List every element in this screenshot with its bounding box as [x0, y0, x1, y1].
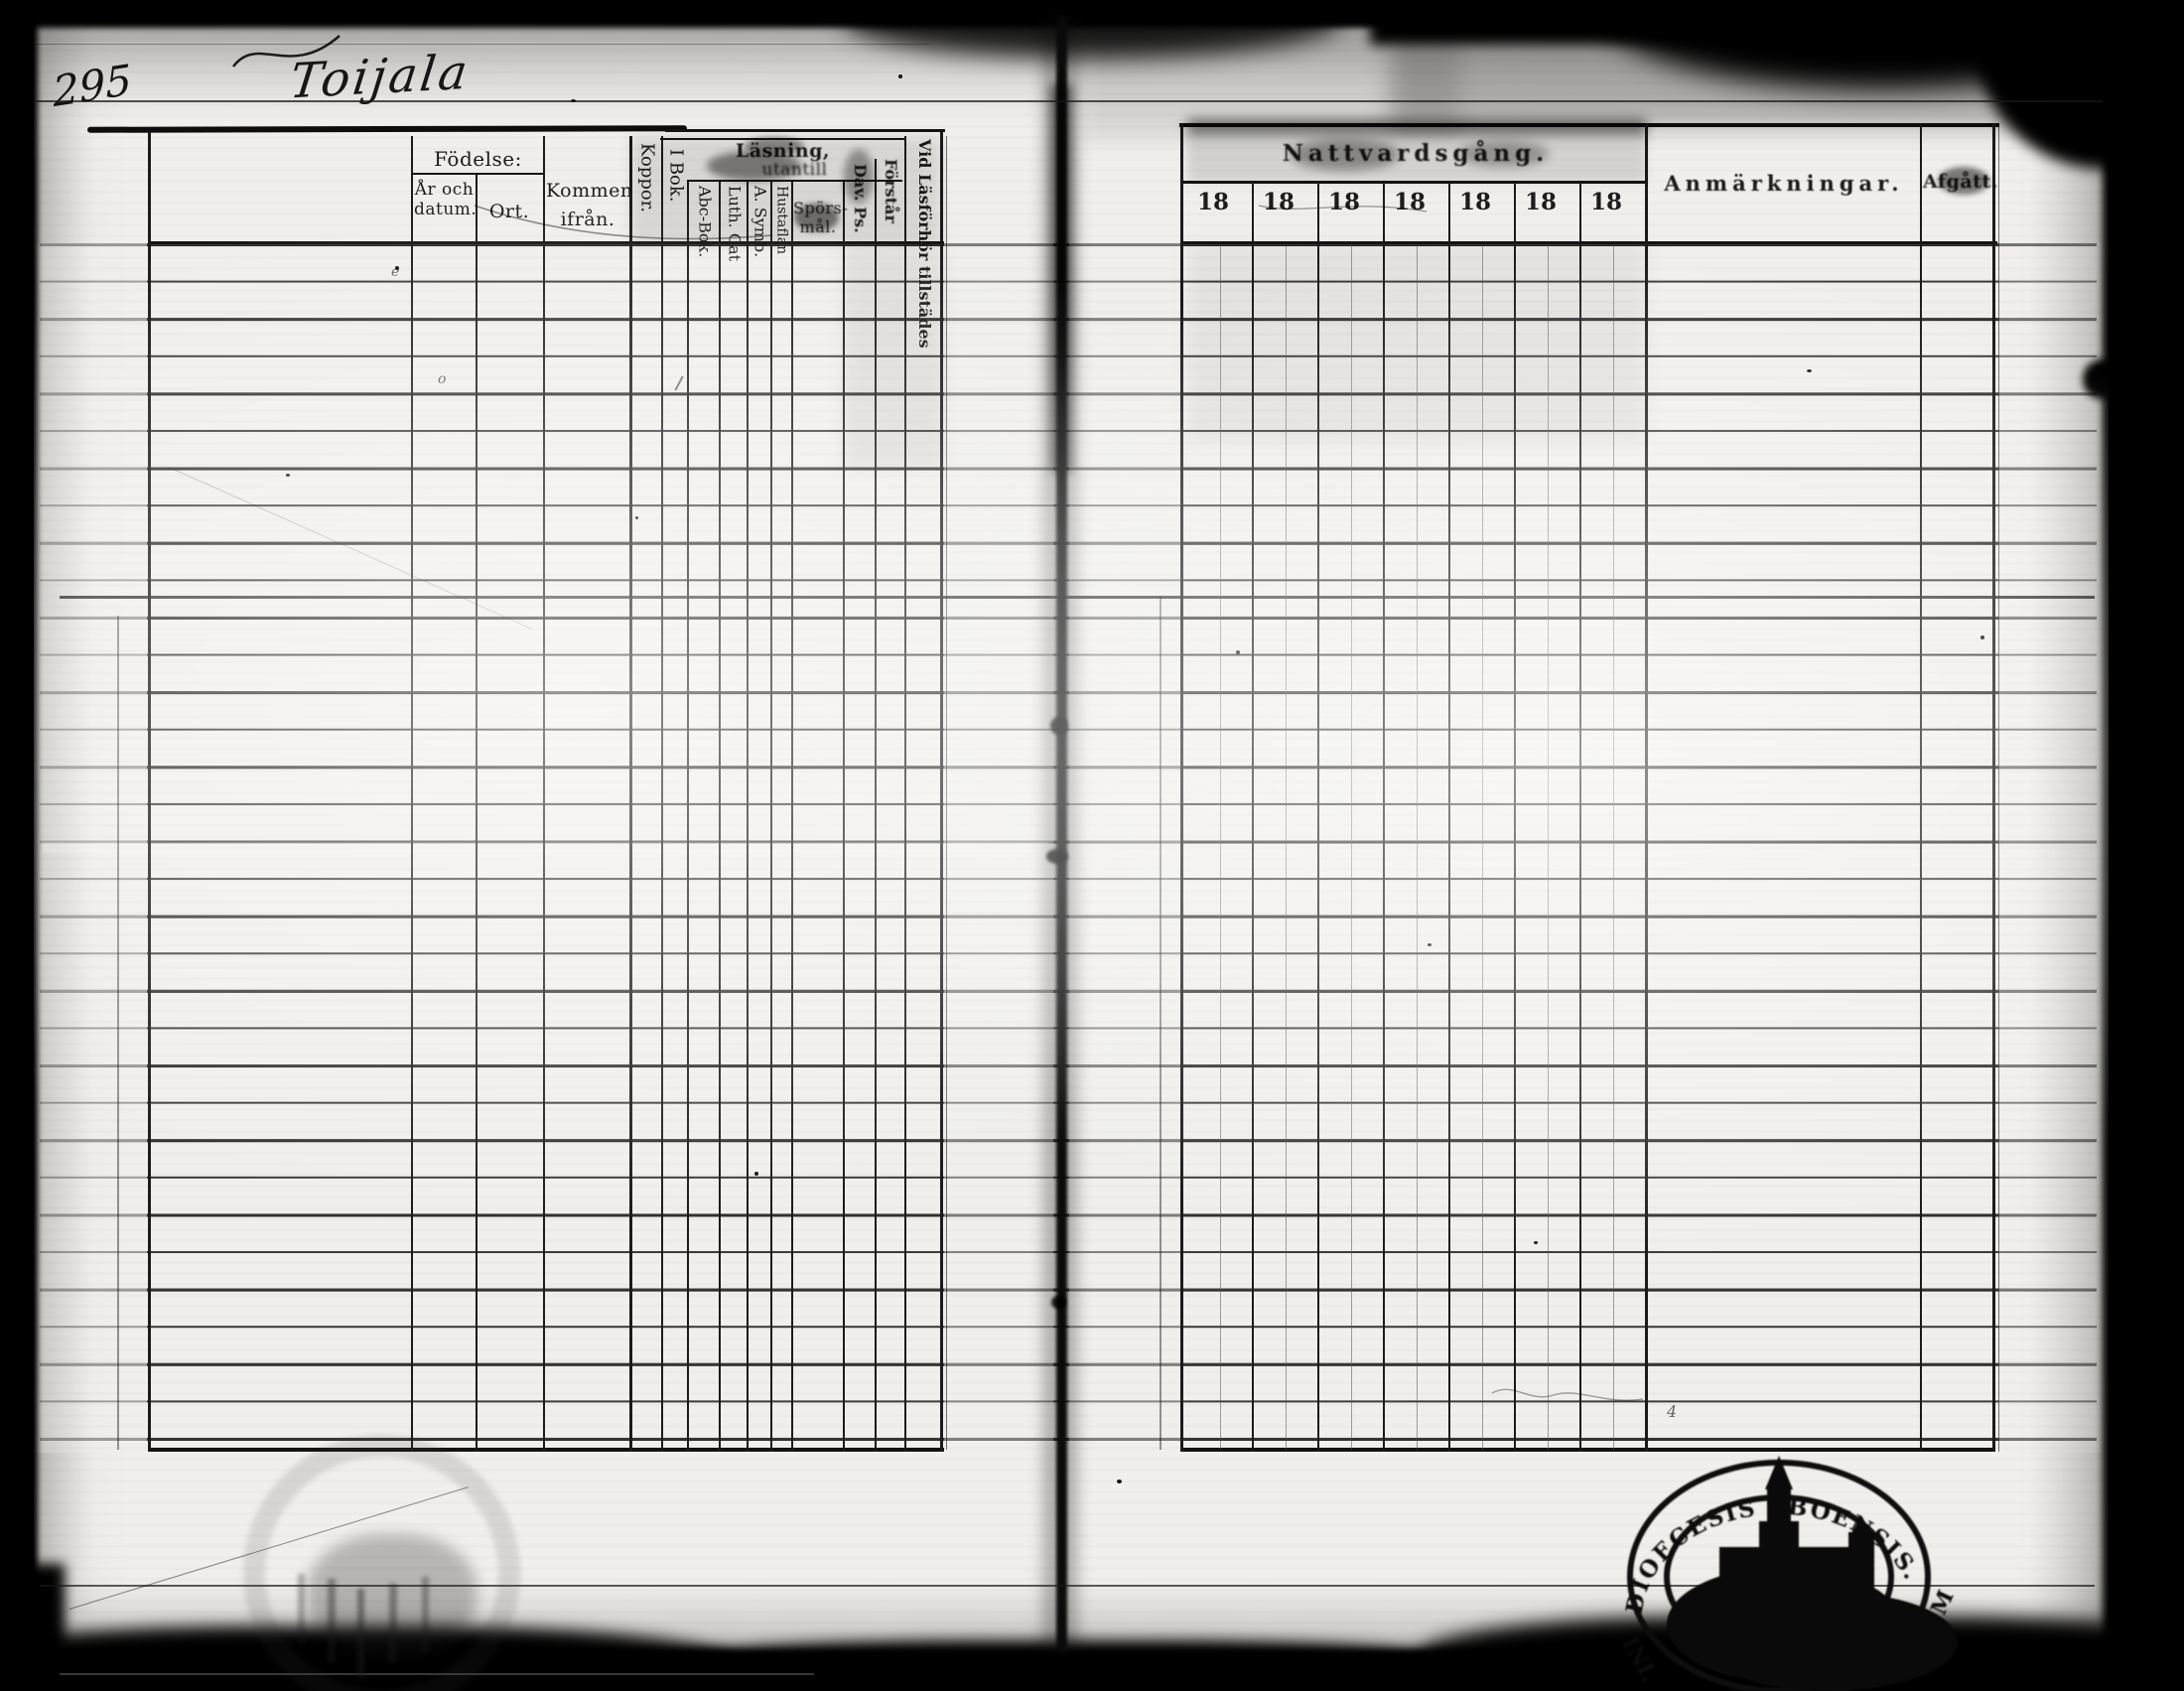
- right-table-left-border: [1180, 123, 1183, 1452]
- column-line: [1998, 127, 1999, 1452]
- pen-scrawl: [1484, 1375, 1653, 1415]
- column-line: [719, 182, 721, 1452]
- column-line: [770, 182, 772, 1452]
- right-header-bottom-border: [1181, 241, 1997, 244]
- scan-border-left: [0, 0, 38, 1691]
- margin-line: [1160, 596, 1161, 1450]
- fodelse-group-label: Födelse:: [412, 147, 544, 171]
- speck: [635, 516, 638, 519]
- speck: [571, 99, 576, 102]
- stamp-drip: [389, 1584, 397, 1663]
- speck: [898, 74, 902, 78]
- body-wash: [844, 248, 943, 467]
- column-line: [543, 136, 545, 1452]
- margin-line: [117, 616, 119, 1450]
- column-line: [747, 182, 749, 1452]
- stamp-drip: [298, 1574, 305, 1643]
- speck: [1807, 369, 1812, 372]
- pen-scratch-years: [1256, 194, 1434, 223]
- body-wash: [1187, 245, 1646, 444]
- fold-crease: [42, 843, 1048, 853]
- speck: [395, 266, 399, 270]
- column-line: [148, 132, 151, 1452]
- column-line: [476, 175, 478, 1452]
- scan-border-right: [2103, 0, 2184, 1691]
- stamp-drip: [357, 1589, 364, 1678]
- column-line: [946, 136, 947, 1450]
- header-smudge: [630, 136, 941, 245]
- year-column-label: 18: [1451, 189, 1515, 215]
- column-line: [687, 182, 689, 1452]
- column-line: [1920, 123, 1922, 1452]
- speck: [754, 1172, 758, 1176]
- pen-mark: 4: [1667, 1402, 1677, 1421]
- speck: [1236, 650, 1240, 654]
- anmarkningar-label: Anmärkningar.: [1648, 171, 1920, 196]
- fodelse-underline: [412, 173, 543, 175]
- speck: [1534, 1241, 1538, 1244]
- pen-flourish: [228, 22, 347, 81]
- left-table-top-border: [665, 129, 945, 132]
- stamp-drip: [422, 1577, 429, 1651]
- speck: [1117, 1480, 1122, 1483]
- year-column-label: 18: [1189, 189, 1253, 215]
- column-line: [411, 136, 413, 1452]
- ar-och-datum-label: År och datum.: [414, 181, 475, 219]
- speck: [1980, 635, 1984, 639]
- year-column-label: 18: [1517, 189, 1580, 215]
- column-line: [791, 182, 793, 1452]
- stamp-drip: [328, 1579, 336, 1663]
- diocese-seal-stamp: DIOECESIS ABOENSIS. INI. M: [1600, 1428, 1968, 1691]
- pen-mark: o: [438, 371, 446, 387]
- afgatt-label: Afgått.: [1923, 171, 1992, 193]
- left-table-bottom-border: [149, 1448, 944, 1452]
- column-line: [629, 136, 632, 1452]
- speck: [286, 474, 290, 477]
- right-table-right-border: [1992, 123, 1995, 1452]
- gutter-shadow-top: [1050, 84, 1072, 472]
- year-column-label: 18: [1582, 189, 1646, 215]
- speck: [1428, 943, 1432, 946]
- scanned-parish-register: Födelse: År och datum. Ort. Kommen ifrån…: [0, 0, 2184, 1691]
- column-line: [661, 136, 663, 1452]
